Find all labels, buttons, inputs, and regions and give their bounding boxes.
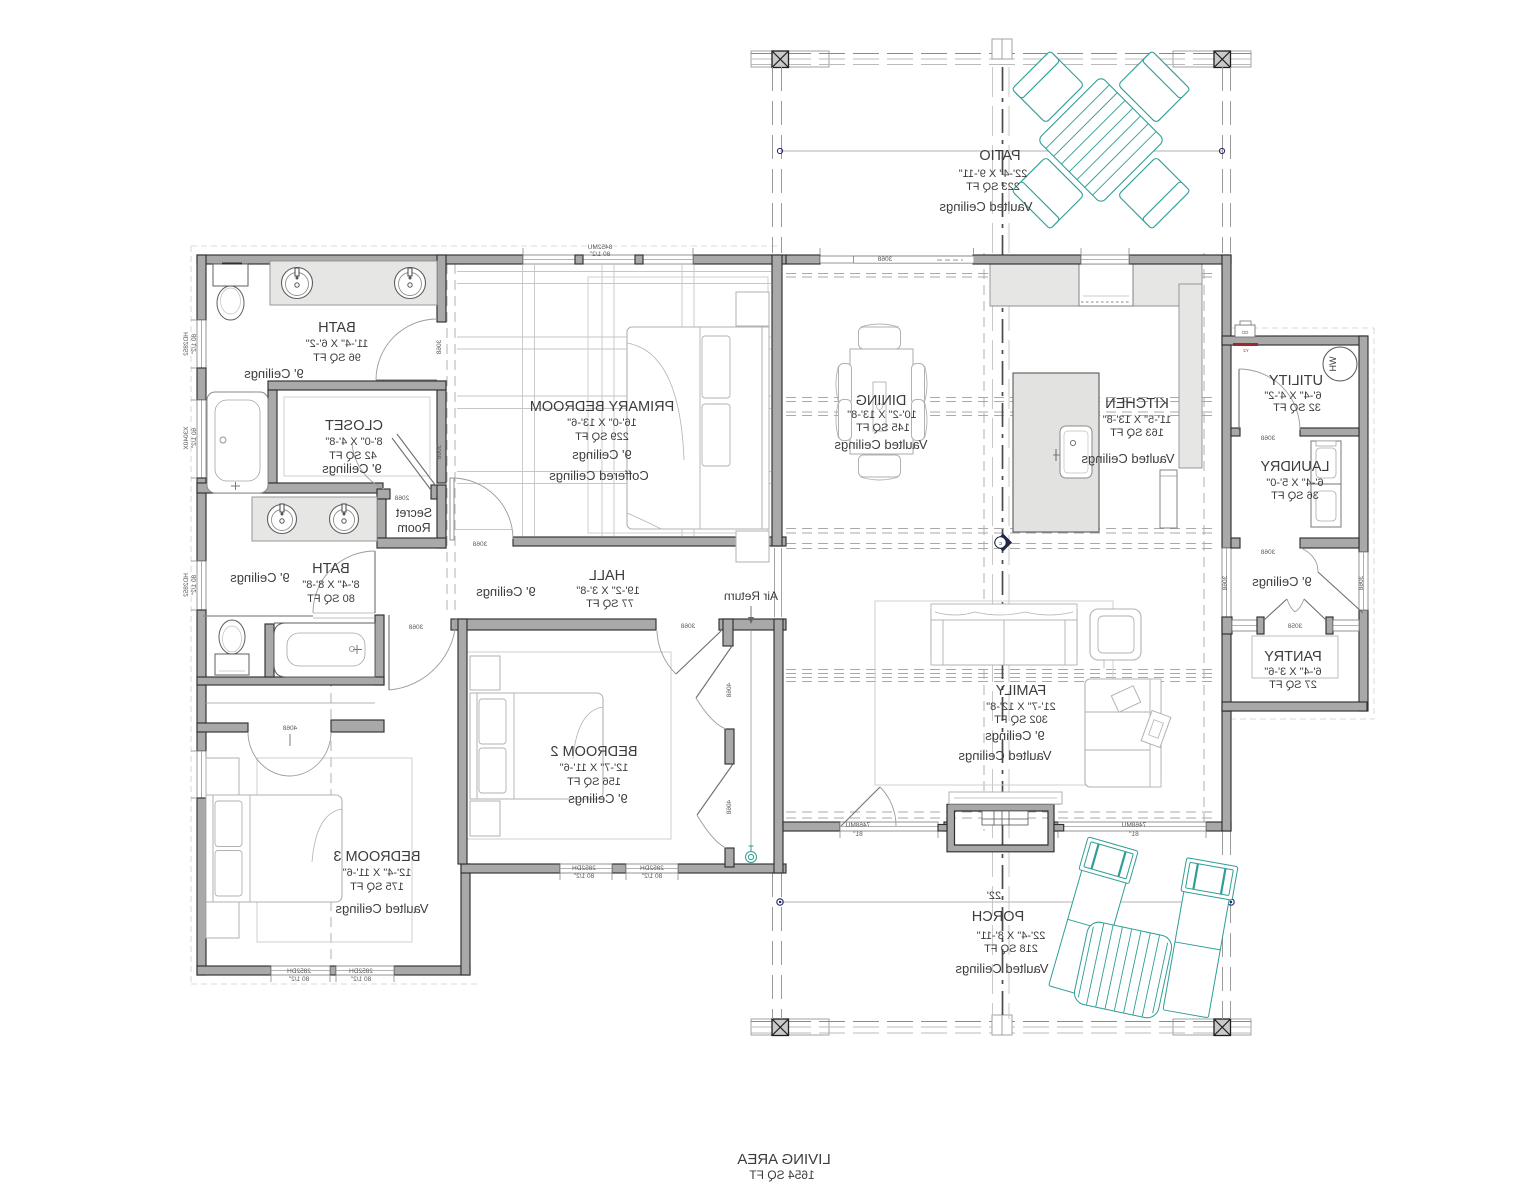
svg-text:81": 81"	[1129, 831, 1139, 838]
svg-text:60 1/2": 60 1/2"	[191, 428, 198, 449]
svg-text:2068: 2068	[394, 495, 409, 502]
svg-text:HD2852: HD2852	[183, 573, 190, 597]
svg-text:8'-4" X 8'-8": 8'-4" X 8'-8"	[302, 579, 359, 591]
svg-text:6'-4" X 4'-2": 6'-4" X 4'-2"	[1264, 390, 1321, 402]
svg-text:163 SQ FT: 163 SQ FT	[1110, 427, 1164, 439]
svg-text:9' Ceilings: 9' Ceilings	[985, 728, 1045, 743]
svg-text:BEDROOM 3: BEDROOM 3	[333, 849, 420, 865]
svg-text:Vaulted Ceilings: Vaulted Ceilings	[834, 437, 927, 452]
svg-text:PRIMARY BEDROOM: PRIMARY BEDROOM	[530, 399, 675, 415]
svg-text:22'-4" X 9'-11": 22'-4" X 9'-11"	[959, 168, 1028, 180]
svg-text:Vaulted Ceilings: Vaulted Ceilings	[335, 901, 428, 916]
svg-text:2852DH: 2852DH	[572, 865, 596, 872]
svg-text:11'-5" X 13'-8": 11'-5" X 13'-8"	[1103, 414, 1172, 426]
svg-text:LIVING AREA: LIVING AREA	[737, 1151, 830, 1168]
svg-text:2852DH: 2852DH	[349, 968, 373, 975]
svg-text:4068: 4068	[282, 725, 297, 732]
svg-text:10'-2" X 13'-8": 10'-2" X 13'-8"	[847, 409, 917, 421]
svg-text:2852DH: 2852DH	[640, 865, 664, 872]
svg-text:1654 SQ FT: 1654 SQ FT	[749, 1168, 815, 1182]
svg-text:22': 22'	[987, 890, 1001, 902]
svg-text:80 1/2": 80 1/2"	[288, 976, 309, 983]
svg-text:PORCH: PORCH	[972, 909, 1024, 925]
svg-text:3068: 3068	[1358, 576, 1365, 591]
svg-text:9' Ceilings: 9' Ceilings	[572, 447, 632, 462]
svg-text:3068: 3068	[436, 340, 443, 355]
svg-text:KITCHEN: KITCHEN	[1105, 396, 1169, 412]
svg-text:80 SQ FT: 80 SQ FT	[307, 593, 355, 605]
svg-text:LAUNDRY: LAUNDRY	[1260, 459, 1329, 475]
svg-text:GD: GD	[1241, 330, 1249, 335]
svg-text:BEDROOM 2: BEDROOM 2	[550, 744, 637, 760]
svg-text:3058: 3058	[1287, 623, 1302, 630]
svg-text:175 SQ FT: 175 SQ FT	[350, 881, 404, 893]
svg-text:80 1/2": 80 1/2"	[191, 334, 198, 355]
svg-text:3068: 3068	[1260, 435, 1275, 442]
svg-text:Coffered Ceilings: Coffered Ceilings	[549, 468, 649, 483]
svg-text:CLOSET: CLOSET	[325, 418, 383, 434]
svg-text:302 SQ FT: 302 SQ FT	[994, 714, 1048, 726]
svg-text:8'-0" X 4'-8": 8'-0" X 4'-8"	[325, 436, 382, 448]
svg-text:Vaulted Ceilings: Vaulted Ceilings	[958, 748, 1051, 763]
svg-text:HD2852: HD2852	[183, 332, 190, 356]
svg-text:156 SQ FT: 156 SQ FT	[567, 776, 621, 788]
svg-text:16'-0" X 13'-6": 16'-0" X 13'-6"	[567, 417, 637, 429]
svg-text:9' Ceilings: 9' Ceilings	[230, 570, 290, 585]
svg-text:9' Ceilings: 9' Ceilings	[568, 791, 628, 806]
svg-text:96 SQ FT: 96 SQ FT	[313, 352, 361, 364]
svg-text:FAMILY: FAMILY	[995, 683, 1046, 699]
svg-text:19'-2" X 3'-8": 19'-2" X 3'-8"	[576, 585, 639, 597]
svg-text:4068: 4068	[726, 683, 733, 698]
svg-text:Vaulted Ceilings: Vaulted Ceilings	[955, 961, 1048, 976]
svg-text:32 SQ FT: 32 SQ FT	[1273, 402, 1321, 414]
svg-text:229 SQ FT: 229 SQ FT	[575, 431, 629, 443]
svg-text:6'-4" X 5'-0": 6'-4" X 5'-0"	[1266, 477, 1323, 489]
svg-text:WH: WH	[1328, 357, 1338, 372]
svg-text:3068: 3068	[436, 445, 443, 460]
svg-text:80 1/2": 80 1/2"	[191, 575, 198, 596]
svg-text:145 SQ FT: 145 SQ FT	[856, 422, 910, 434]
svg-text:BATH: BATH	[312, 561, 350, 577]
svg-text:22'-4" X 8'-11": 22'-4" X 8'-11"	[977, 930, 1046, 942]
svg-text:DINING: DINING	[856, 393, 907, 409]
svg-text:X3040X: X3040X	[183, 426, 190, 450]
svg-text:Vaulted Ceilings: Vaulted Ceilings	[1081, 451, 1174, 466]
svg-text:Secret: Secret	[395, 506, 432, 520]
svg-text:27 SQ FT: 27 SQ FT	[1269, 679, 1317, 691]
svg-text:223 SQ FT: 223 SQ FT	[966, 181, 1020, 193]
svg-text:BATH: BATH	[318, 320, 356, 336]
svg-text:7468MU: 7468MU	[845, 822, 870, 829]
svg-text:Room: Room	[397, 521, 430, 535]
svg-text:218 SQ FT: 218 SQ FT	[984, 943, 1038, 955]
svg-text:3068: 3068	[1260, 549, 1275, 556]
svg-text:8452MU: 8452MU	[587, 244, 612, 251]
svg-text:77 SQ FT: 77 SQ FT	[586, 598, 634, 610]
svg-text:9' Ceilings: 9' Ceilings	[322, 461, 382, 476]
svg-text:3068: 3068	[408, 624, 423, 631]
svg-text:81": 81"	[853, 831, 863, 838]
svg-text:12'-7" X 11'-6": 12'-7" X 11'-6"	[560, 762, 629, 774]
svg-text:Air Return: Air Return	[724, 589, 778, 603]
svg-text:9' Ceilings: 9' Ceilings	[244, 366, 304, 381]
svg-text:3068: 3068	[1222, 576, 1229, 591]
svg-text:9' Ceilings: 9' Ceilings	[476, 584, 536, 599]
svg-text:36 SQ FT: 36 SQ FT	[1271, 490, 1319, 502]
svg-text:80 1/2": 80 1/2"	[573, 873, 594, 880]
svg-text:21'-7" X 12'-8": 21'-7" X 12'-8"	[986, 701, 1056, 713]
svg-text:Vaulted Ceilings: Vaulted Ceilings	[939, 199, 1032, 214]
svg-text:11'-4" X 6'-2": 11'-4" X 6'-2"	[306, 338, 369, 350]
svg-text:PATIO: PATIO	[979, 148, 1020, 164]
svg-text:12'-4" X 11'-6": 12'-4" X 11'-6"	[343, 867, 412, 879]
svg-text:9' Ceilings: 9' Ceilings	[1252, 574, 1312, 589]
svg-text:PANTRY: PANTRY	[1264, 649, 1322, 665]
svg-text:HALL: HALL	[589, 568, 625, 584]
svg-text:3068: 3068	[877, 256, 892, 263]
svg-text:UTILITY: UTILITY	[1269, 373, 1323, 389]
svg-text:80 1/2": 80 1/2"	[641, 873, 662, 880]
svg-text:2852DH: 2852DH	[287, 968, 311, 975]
svg-text:80 1/2": 80 1/2"	[350, 976, 371, 983]
svg-text:3068: 3068	[472, 541, 487, 548]
svg-text:3068: 3068	[680, 623, 695, 630]
svg-text:4068: 4068	[726, 800, 733, 815]
svg-text:80 1/2": 80 1/2"	[589, 251, 610, 258]
svg-text:Y2: Y2	[1243, 348, 1249, 353]
svg-text:6'-4" X 3'-6": 6'-4" X 3'-6"	[1264, 666, 1321, 678]
svg-text:7468MU: 7468MU	[1121, 822, 1146, 829]
